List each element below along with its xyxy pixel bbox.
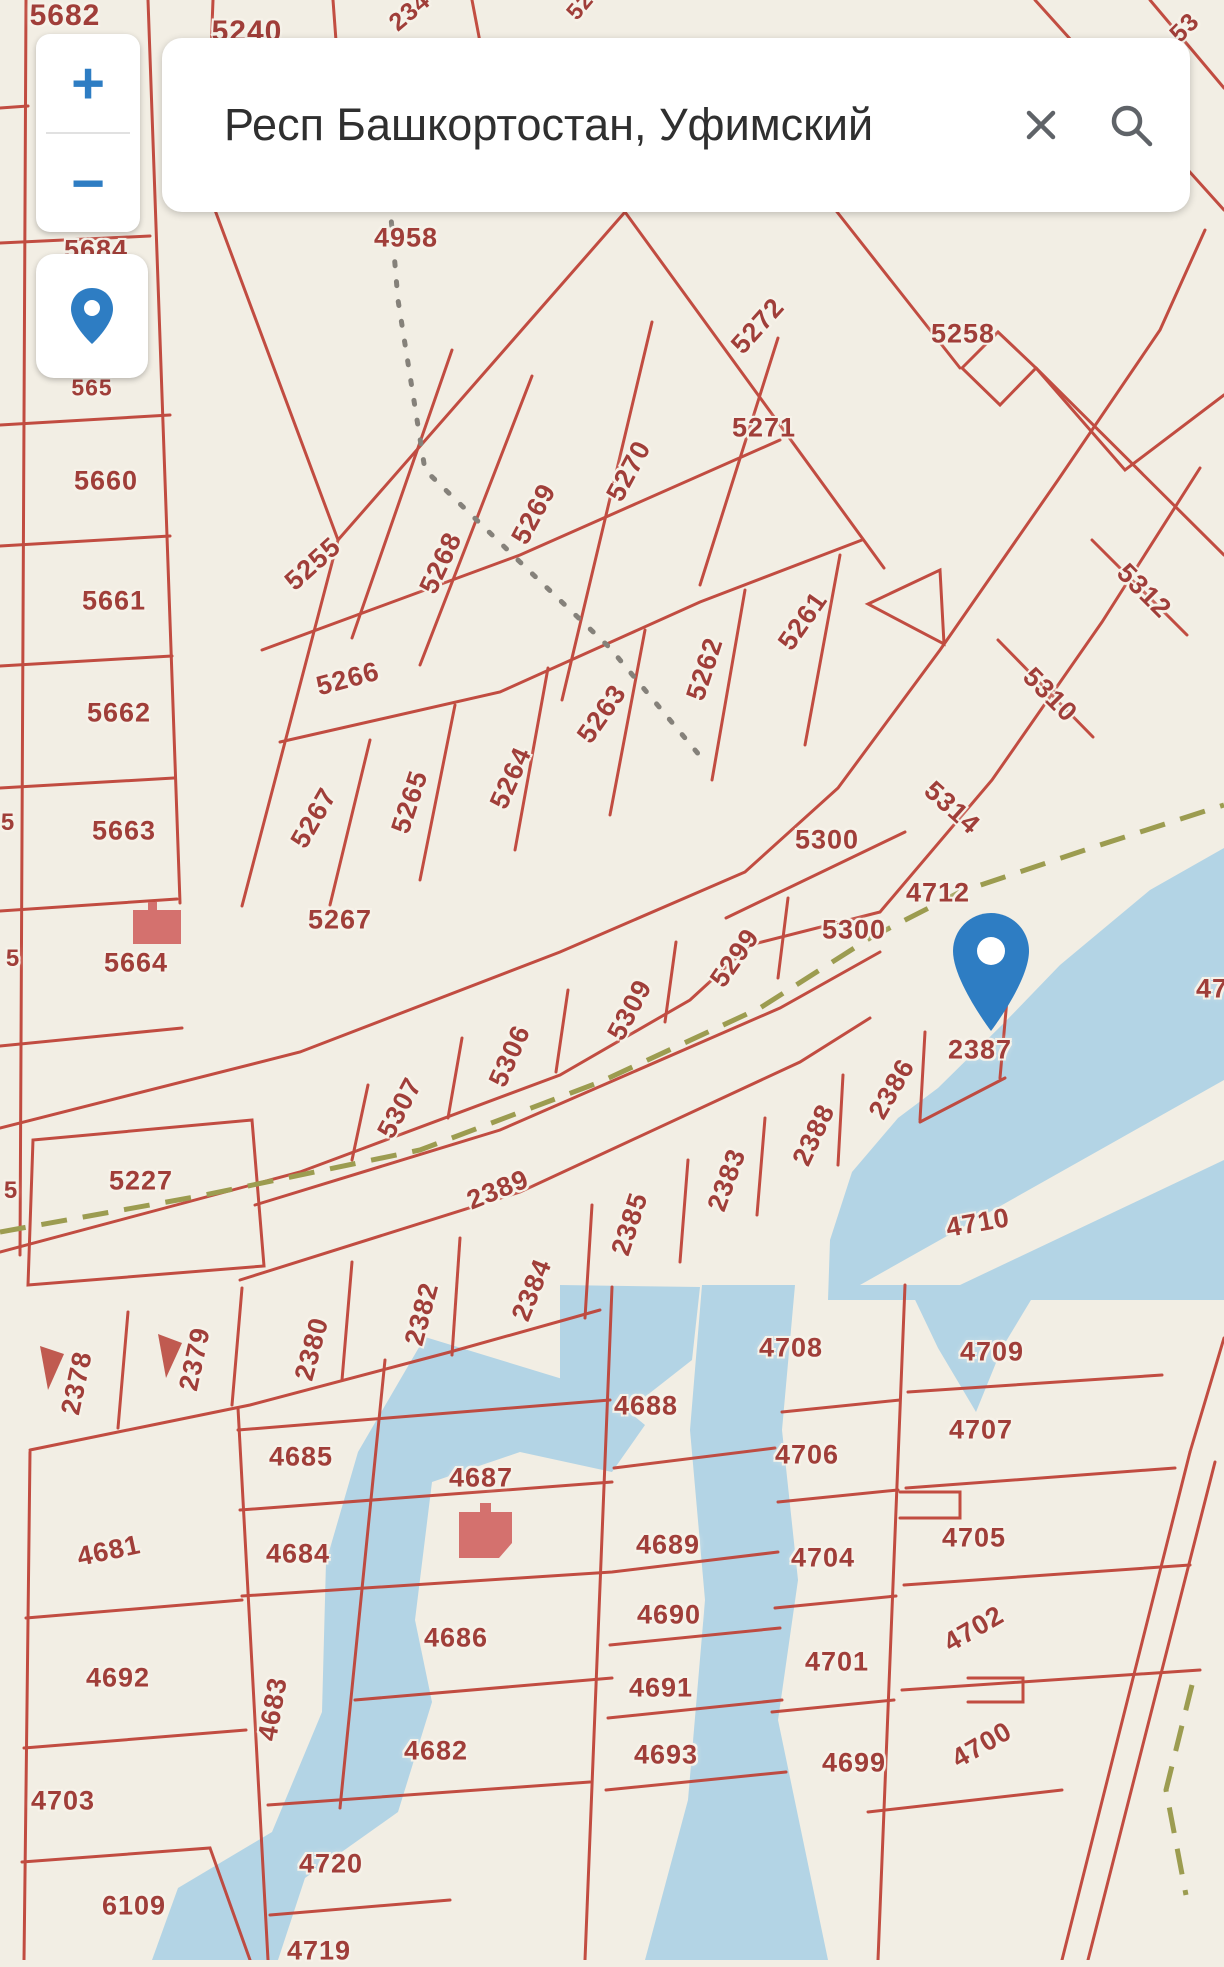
parcel-label-4708: 4708 [759,1333,823,1364]
parcel-label-4699: 4699 [822,1748,886,1779]
zoom-in-button[interactable]: + [36,34,140,132]
parcel-boundaries [0,0,1224,1960]
parcel-label-4682: 4682 [404,1736,468,1767]
parcel-label-4958: 4958 [374,223,438,254]
parcel-label-5661: 5661 [82,586,146,617]
parcel-label-5-partial: 5 [6,945,20,973]
search-input[interactable] [162,98,996,152]
parcel-label-4705: 4705 [942,1523,1006,1554]
parcel-label-4703: 4703 [31,1786,95,1817]
parcel-label-4686: 4686 [424,1623,488,1654]
parcel-label-4704: 4704 [791,1543,855,1574]
parcel-label-5663: 5663 [92,816,156,847]
parcel-label-5258: 5258 [931,319,995,350]
parcel-label-4690: 4690 [637,1600,701,1631]
map-marker-pin[interactable] [951,911,1031,1033]
dotted-path [388,182,700,756]
parcel-label-5660: 5660 [74,466,138,497]
parcel-label-47-partial: 47 [1196,974,1224,1005]
parcel-label-5300: 5300 [795,825,859,856]
parcel-label-4712: 4712 [906,878,970,909]
parcel-label-4689: 4689 [636,1530,700,1561]
parcel-label-6109: 6109 [102,1891,166,1922]
search-icon [1106,100,1156,150]
map-canvas[interactable]: 5682524023452535684565566056615662566356… [0,0,1224,1960]
parcel-label-4684: 4684 [266,1539,330,1570]
zoom-out-button[interactable]: − [36,134,140,232]
parcel-label-2387: 2387 [948,1035,1012,1066]
parcel-label-5-partial: 5 [4,1177,18,1205]
parcel-label-4720: 4720 [299,1849,363,1880]
parcel-label-4692: 4692 [86,1663,150,1694]
parcel-label-5664: 5664 [104,948,168,979]
parcel-label-5267: 5267 [308,905,372,936]
map-basemap [0,0,1224,1960]
parcel-label-5662: 5662 [87,698,151,729]
geolocate-button[interactable] [36,254,148,378]
clear-search-button[interactable] [996,80,1086,170]
parcel-label-5682: 5682 [30,0,101,33]
parcel-label-5227: 5227 [109,1166,173,1197]
water-polygon [152,848,1224,1960]
search-submit-button[interactable] [1086,80,1176,170]
parcel-label-5-partial: 5 [1,809,15,837]
parcel-label-4685: 4685 [269,1442,333,1473]
parcel-label-4701: 4701 [805,1647,869,1678]
parcel-label-5271: 5271 [732,413,796,444]
parcel-label-4693: 4693 [634,1740,698,1771]
search-bar [162,38,1190,212]
parcel-label-4688: 4688 [614,1391,678,1422]
parcel-label-565-partial: 565 [71,375,112,402]
parcel-label-4709: 4709 [960,1337,1024,1368]
zoom-control: + − [36,34,140,232]
parcel-label-4706: 4706 [775,1440,839,1471]
close-icon [1018,102,1064,148]
parcel-label-5300: 5300 [822,915,886,946]
parcel-label-4687: 4687 [449,1463,513,1494]
parcel-label-4707: 4707 [949,1415,1013,1446]
location-pin-icon [68,286,116,346]
parcel-label-4719: 4719 [287,1936,351,1967]
parcel-label-4691: 4691 [629,1673,693,1704]
